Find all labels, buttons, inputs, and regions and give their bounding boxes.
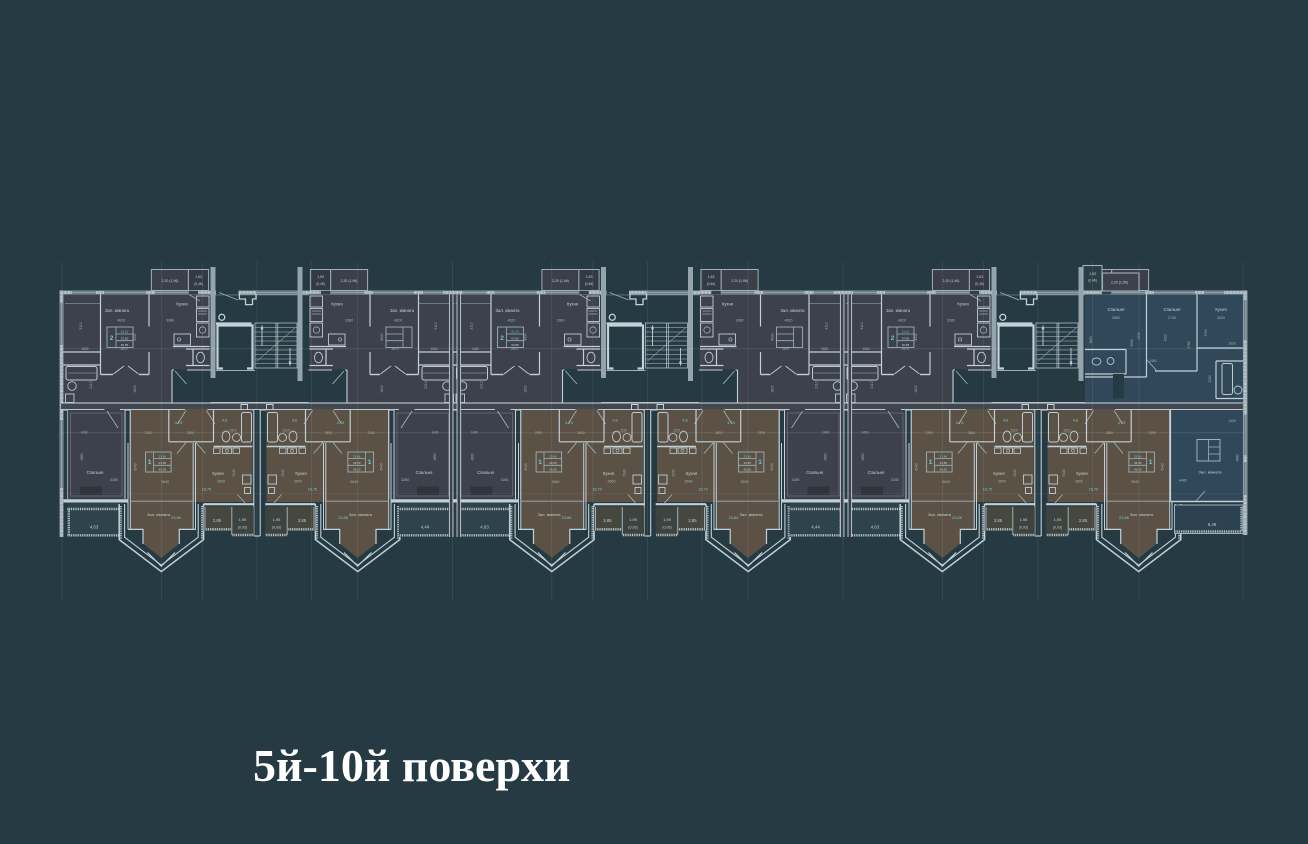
- svg-text:4,44: 4,44: [421, 525, 430, 530]
- svg-text:1: 1: [1149, 459, 1153, 466]
- svg-text:23,86: 23,86: [952, 515, 963, 520]
- svg-text:2,85: 2,85: [213, 518, 222, 523]
- svg-text:4880: 4880: [824, 453, 828, 460]
- svg-text:6940: 6940: [380, 463, 384, 470]
- svg-text:1: 1: [538, 459, 542, 466]
- svg-text:1,95: 1,95: [663, 517, 672, 522]
- svg-text:3380: 3380: [736, 319, 744, 323]
- svg-text:60,85: 60,85: [902, 343, 910, 347]
- svg-text:43,50: 43,50: [743, 461, 751, 465]
- svg-text:3640: 3640: [552, 480, 560, 484]
- svg-text:4880: 4880: [1236, 454, 1240, 461]
- svg-text:3110: 3110: [825, 322, 829, 329]
- svg-text:43,50: 43,50: [353, 461, 361, 465]
- svg-text:4480: 4480: [1179, 479, 1187, 483]
- svg-text:4,63: 4,63: [480, 525, 489, 530]
- svg-text:43,50: 43,50: [159, 461, 167, 465]
- svg-text:Зал. кімната: Зал. кімната: [147, 512, 171, 517]
- svg-text:21,10: 21,10: [902, 330, 910, 334]
- svg-text:3500: 3500: [685, 480, 693, 484]
- svg-text:Зал. кімната: Зал. кімната: [390, 308, 415, 313]
- svg-text:4330: 4330: [380, 333, 384, 341]
- svg-text:3280: 3280: [501, 478, 509, 482]
- svg-text:4330: 4330: [133, 333, 137, 341]
- svg-text:6940: 6940: [1161, 463, 1165, 470]
- svg-text:3110: 3110: [470, 322, 474, 329]
- svg-text:1600: 1600: [380, 385, 384, 393]
- svg-text:3640: 3640: [741, 480, 749, 484]
- svg-text:2310: 2310: [673, 429, 680, 433]
- svg-text:3020: 3020: [1217, 316, 1225, 320]
- svg-text:1,53: 1,53: [586, 275, 593, 279]
- svg-text:Зал. кімната: Зал. кімната: [1130, 512, 1154, 517]
- svg-text:Зал. кімната: Зал. кімната: [886, 308, 911, 313]
- svg-text:3640: 3640: [161, 480, 169, 484]
- svg-text:43,20: 43,20: [1134, 468, 1142, 472]
- svg-text:3500: 3500: [294, 480, 302, 484]
- svg-text:23,86: 23,86: [561, 515, 572, 520]
- svg-text:21,10: 21,10: [121, 330, 129, 334]
- svg-text:3140: 3140: [1013, 469, 1017, 476]
- svg-text:21,10: 21,10: [391, 330, 399, 334]
- svg-text:3140: 3140: [1062, 469, 1066, 476]
- svg-text:2: 2: [500, 335, 504, 342]
- svg-text:23,86: 23,86: [1119, 515, 1130, 520]
- svg-text:2,20 (1,96): 2,20 (1,96): [341, 279, 358, 283]
- svg-text:Зал. кімната: Зал. кімната: [928, 512, 952, 517]
- svg-text:1,95: 1,95: [1054, 517, 1063, 522]
- svg-text:3280: 3280: [110, 478, 118, 482]
- svg-text:21,10: 21,10: [781, 330, 789, 334]
- svg-text:2210: 2210: [1208, 375, 1212, 382]
- svg-text:Кухня: Кухня: [722, 302, 733, 307]
- svg-text:Кухня: Кухня: [176, 302, 187, 307]
- svg-text:2: 2: [110, 335, 114, 342]
- svg-text:4880: 4880: [433, 453, 437, 460]
- svg-text:2,20 (1,96): 2,20 (1,96): [943, 279, 960, 283]
- svg-text:3500: 3500: [217, 480, 225, 484]
- svg-text:23,86: 23,86: [353, 454, 361, 458]
- svg-text:4620: 4620: [508, 319, 516, 323]
- svg-text:2,85: 2,85: [688, 518, 697, 523]
- svg-text:(0,46): (0,46): [194, 282, 203, 286]
- svg-text:Зал. кімната: Зал. кімната: [538, 512, 562, 517]
- svg-text:2110: 2110: [870, 381, 874, 388]
- svg-text:60,85: 60,85: [121, 343, 129, 347]
- svg-text:2,20 (1,96): 2,20 (1,96): [731, 279, 748, 283]
- svg-text:43,20: 43,20: [743, 468, 751, 472]
- svg-text:3380: 3380: [166, 319, 174, 323]
- svg-text:57,80: 57,80: [511, 336, 519, 340]
- svg-text:1,53: 1,53: [708, 275, 715, 279]
- svg-text:Зал. кімната: Зал. кімната: [105, 308, 130, 313]
- svg-text:3030: 3030: [1130, 339, 1134, 346]
- svg-text:3640: 3640: [350, 480, 358, 484]
- svg-text:Спальня: Спальня: [87, 470, 104, 475]
- svg-text:(0,93): (0,93): [272, 526, 281, 530]
- svg-text:Спальня: Спальня: [477, 470, 494, 475]
- svg-text:2310: 2310: [1063, 429, 1070, 433]
- svg-text:3640: 3640: [1131, 480, 1139, 484]
- svg-text:Зал. кімната: Зал. кімната: [740, 512, 764, 517]
- svg-text:Кухня: Кухня: [993, 471, 1004, 476]
- svg-text:1,95: 1,95: [239, 517, 248, 522]
- svg-text:1600: 1600: [914, 385, 918, 393]
- svg-text:(0,46): (0,46): [585, 282, 594, 286]
- svg-text:23,86: 23,86: [1134, 454, 1142, 458]
- svg-text:2,20 (1,96): 2,20 (1,96): [162, 279, 179, 283]
- svg-text:23,86: 23,86: [940, 454, 948, 458]
- svg-text:1,53: 1,53: [317, 275, 324, 279]
- svg-text:(0,46): (0,46): [316, 282, 325, 286]
- svg-text:57,80: 57,80: [781, 336, 789, 340]
- svg-text:3140: 3140: [281, 469, 285, 476]
- svg-text:3110: 3110: [79, 322, 83, 329]
- svg-text:6940: 6940: [770, 463, 774, 470]
- svg-text:2310: 2310: [229, 429, 236, 433]
- svg-text:Зал. кімната: Зал. кімната: [495, 308, 520, 313]
- svg-text:(0,46): (0,46): [975, 282, 984, 286]
- svg-text:(0,93): (0,93): [238, 526, 247, 530]
- svg-text:6940: 6940: [524, 463, 528, 470]
- svg-text:3280: 3280: [891, 478, 899, 482]
- svg-text:57,80: 57,80: [902, 336, 910, 340]
- svg-text:2,20 (1,96): 2,20 (1,96): [1111, 281, 1128, 285]
- svg-text:1460: 1460: [1149, 359, 1156, 363]
- svg-text:3280: 3280: [792, 478, 800, 482]
- svg-text:2310: 2310: [620, 429, 627, 433]
- svg-text:43,50: 43,50: [549, 461, 557, 465]
- svg-text:23,86: 23,86: [743, 454, 751, 458]
- svg-text:4880: 4880: [861, 453, 865, 460]
- svg-text:1: 1: [929, 459, 933, 466]
- svg-text:2,20 (1,96): 2,20 (1,96): [552, 279, 569, 283]
- svg-text:2: 2: [891, 335, 895, 342]
- svg-text:4330: 4330: [771, 333, 775, 341]
- svg-text:43,20: 43,20: [353, 468, 361, 472]
- svg-text:3380: 3380: [947, 319, 955, 323]
- svg-text:57,80: 57,80: [121, 336, 129, 340]
- svg-text:2,85: 2,85: [603, 518, 612, 523]
- svg-text:3140: 3140: [623, 469, 627, 476]
- svg-text:(0,93): (0,93): [1053, 526, 1062, 530]
- svg-text:57,80: 57,80: [391, 336, 399, 340]
- svg-text:4,63: 4,63: [90, 525, 99, 530]
- svg-text:43,20: 43,20: [549, 468, 557, 472]
- svg-text:4330: 4330: [524, 333, 528, 341]
- svg-text:3790: 3790: [1204, 329, 1208, 336]
- svg-text:43,50: 43,50: [1134, 461, 1142, 465]
- svg-text:Спальня: Спальня: [416, 470, 433, 475]
- svg-text:(0,93): (0,93): [662, 526, 671, 530]
- svg-text:3110: 3110: [860, 322, 864, 329]
- svg-text:2310: 2310: [1010, 429, 1017, 433]
- svg-text:Кухня: Кухня: [331, 302, 342, 307]
- svg-text:4,44: 4,44: [811, 525, 820, 530]
- svg-text:4,8: 4,8: [292, 419, 297, 423]
- svg-text:23,86: 23,86: [171, 515, 182, 520]
- svg-text:Спальня: Спальня: [868, 470, 885, 475]
- svg-text:2110: 2110: [815, 381, 819, 388]
- svg-text:Кухня: Кухня: [603, 471, 614, 476]
- svg-text:4620: 4620: [117, 319, 125, 323]
- svg-text:2: 2: [796, 335, 800, 342]
- svg-text:Спальня: Спальня: [1164, 307, 1181, 312]
- svg-text:(0,93): (0,93): [628, 526, 637, 530]
- svg-text:1: 1: [758, 459, 762, 466]
- svg-text:3500: 3500: [998, 480, 1006, 484]
- svg-text:3560: 3560: [1112, 316, 1120, 320]
- svg-text:(0,93): (0,93): [1019, 526, 1028, 530]
- svg-text:(0,46): (0,46): [707, 282, 716, 286]
- svg-text:21,10: 21,10: [511, 330, 519, 334]
- svg-text:Спальня: Спальня: [806, 470, 823, 475]
- svg-text:Кухня: Кухня: [295, 471, 306, 476]
- svg-text:Зал. кімната: Зал. кімната: [349, 512, 373, 517]
- svg-text:1600: 1600: [524, 385, 528, 393]
- svg-text:6,48: 6,48: [1208, 522, 1217, 527]
- svg-text:3140: 3140: [672, 469, 676, 476]
- svg-text:1600: 1600: [133, 385, 137, 393]
- svg-text:4,8: 4,8: [612, 419, 617, 423]
- svg-text:3280: 3280: [401, 478, 409, 482]
- svg-text:4880: 4880: [471, 453, 475, 460]
- svg-text:16,75: 16,75: [698, 488, 708, 492]
- svg-text:1,95: 1,95: [273, 517, 282, 522]
- svg-text:2740: 2740: [1168, 316, 1176, 320]
- svg-text:1,95: 1,95: [629, 517, 638, 522]
- svg-text:3640: 3640: [942, 480, 950, 484]
- svg-text:4330: 4330: [914, 333, 918, 341]
- svg-text:43,20: 43,20: [940, 468, 948, 472]
- svg-text:1,53: 1,53: [976, 275, 983, 279]
- svg-text:4,8: 4,8: [682, 419, 687, 423]
- svg-text:1600: 1600: [771, 385, 775, 393]
- svg-text:43,20: 43,20: [159, 468, 167, 472]
- svg-text:4220: 4220: [1164, 334, 1168, 341]
- svg-text:16,75: 16,75: [592, 488, 602, 492]
- svg-text:Кухня: Кухня: [212, 471, 223, 476]
- svg-text:4620: 4620: [785, 319, 793, 323]
- svg-text:Кухня: Кухня: [957, 302, 968, 307]
- svg-text:4,8: 4,8: [222, 419, 227, 423]
- svg-text:16,75: 16,75: [202, 488, 212, 492]
- svg-text:Кухня: Кухня: [1076, 471, 1087, 476]
- svg-text:4,63: 4,63: [871, 525, 880, 530]
- svg-text:2,85: 2,85: [994, 518, 1003, 523]
- svg-text:43,50: 43,50: [940, 461, 948, 465]
- svg-text:1030: 1030: [1228, 342, 1235, 346]
- svg-text:1,95: 1,95: [1020, 517, 1029, 522]
- svg-text:3500: 3500: [608, 480, 616, 484]
- svg-text:3140: 3140: [232, 469, 236, 476]
- svg-text:Зал. кімната: Зал. кімната: [1199, 470, 1223, 475]
- svg-text:Кухня: Кухня: [567, 302, 578, 307]
- svg-text:2,85: 2,85: [1079, 518, 1088, 523]
- svg-text:6940: 6940: [134, 463, 138, 470]
- svg-text:4620: 4620: [898, 319, 906, 323]
- svg-text:60,85: 60,85: [781, 343, 789, 347]
- svg-text:16,75: 16,75: [1089, 488, 1099, 492]
- svg-text:23,86: 23,86: [159, 454, 167, 458]
- svg-text:3500: 3500: [1075, 480, 1083, 484]
- svg-text:3110: 3110: [434, 322, 438, 329]
- svg-text:60,85: 60,85: [391, 343, 399, 347]
- svg-text:60,85: 60,85: [511, 343, 519, 347]
- svg-text:2,85: 2,85: [298, 518, 307, 523]
- svg-text:3380: 3380: [345, 319, 353, 323]
- svg-text:4,8: 4,8: [1003, 419, 1008, 423]
- svg-text:16,75: 16,75: [308, 488, 318, 492]
- svg-text:16,75: 16,75: [983, 488, 993, 492]
- svg-text:4620: 4620: [394, 319, 402, 323]
- svg-text:Кухня: Кухня: [686, 471, 697, 476]
- svg-text:4,8: 4,8: [1073, 419, 1078, 423]
- svg-text:3380: 3380: [557, 319, 565, 323]
- svg-text:1430: 1430: [1228, 419, 1235, 423]
- svg-text:23,86: 23,86: [728, 515, 739, 520]
- svg-text:Зал. кімната: Зал. кімната: [780, 308, 805, 313]
- svg-text:23,86: 23,86: [549, 454, 557, 458]
- svg-text:6940: 6940: [915, 463, 919, 470]
- svg-text:2110: 2110: [424, 381, 428, 388]
- svg-text:1,53: 1,53: [195, 275, 202, 279]
- svg-text:4880: 4880: [80, 453, 84, 460]
- svg-text:2: 2: [406, 335, 410, 342]
- svg-text:Спальня: Спальня: [1108, 307, 1125, 312]
- svg-text:1700: 1700: [1187, 341, 1191, 348]
- svg-text:2110: 2110: [89, 381, 93, 388]
- svg-text:23,86: 23,86: [338, 515, 349, 520]
- svg-text:1: 1: [148, 459, 152, 466]
- svg-text:Кухня: Кухня: [1215, 307, 1226, 312]
- svg-text:2110: 2110: [480, 381, 484, 388]
- svg-text:2310: 2310: [282, 429, 289, 433]
- svg-text:1: 1: [368, 459, 372, 466]
